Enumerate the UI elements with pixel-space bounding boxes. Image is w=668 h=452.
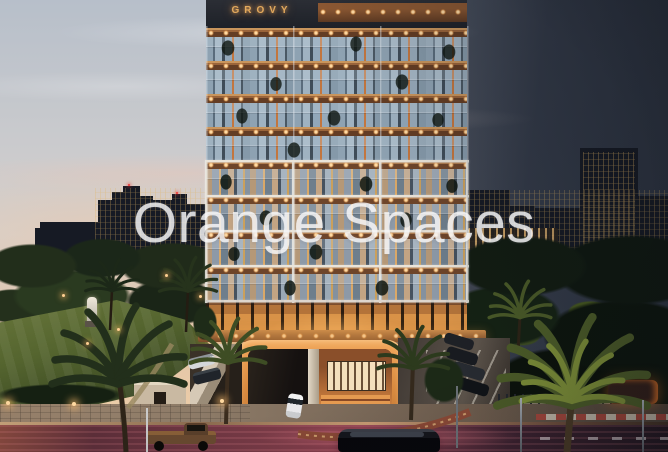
street-light-pole <box>520 398 522 452</box>
watermark-text: Orange Spaces <box>0 190 668 256</box>
garden-lamp <box>165 274 168 277</box>
property-render-photo: GROVY <box>0 0 668 452</box>
street-light-pole <box>456 386 458 448</box>
sign-pole <box>146 408 148 452</box>
garden-lamp <box>117 328 120 331</box>
palm-crown <box>86 260 139 291</box>
garden-lamp <box>86 342 89 345</box>
garden-lamp <box>199 295 202 298</box>
path-lamp <box>72 402 76 406</box>
path-lamp <box>220 399 224 403</box>
palm-crown <box>378 327 448 369</box>
garden-lamp <box>62 294 65 297</box>
palm-crown <box>489 281 551 317</box>
palm-crown <box>191 319 266 363</box>
street-light-pole <box>642 400 644 452</box>
path-lamp <box>6 401 10 405</box>
palm-crown <box>52 306 184 384</box>
